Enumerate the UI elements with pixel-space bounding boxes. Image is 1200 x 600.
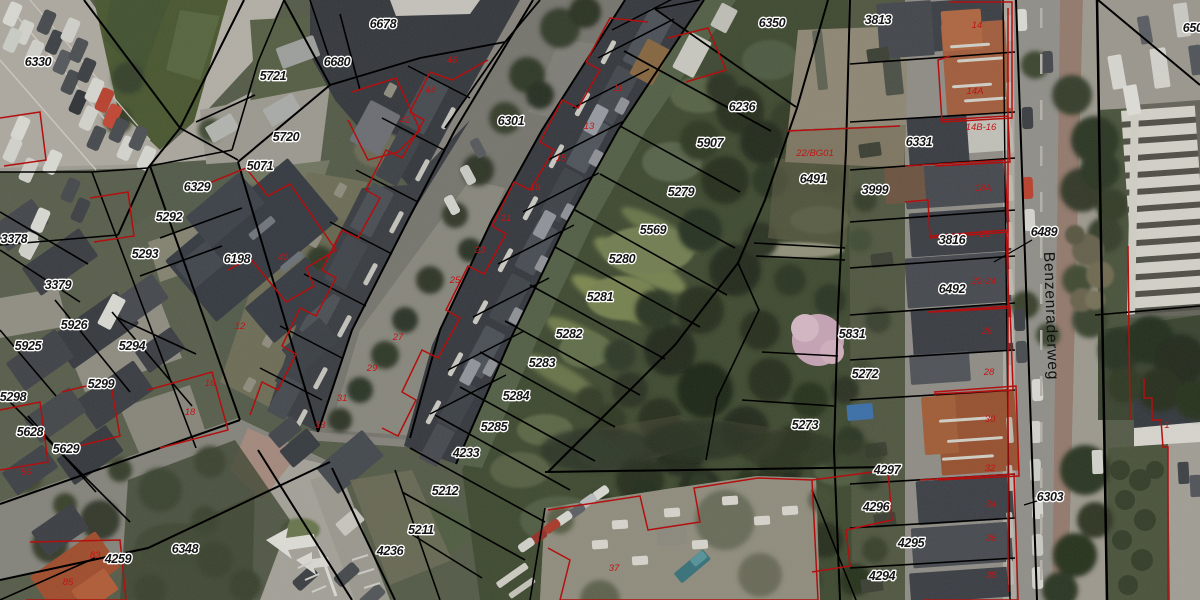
svg-text:18A: 18A bbox=[975, 183, 992, 194]
svg-text:6507: 6507 bbox=[1183, 21, 1200, 35]
svg-text:22/BG01: 22/BG01 bbox=[795, 148, 834, 159]
svg-text:5907: 5907 bbox=[697, 136, 725, 150]
svg-text:6489: 6489 bbox=[1031, 225, 1058, 239]
svg-text:5283: 5283 bbox=[529, 356, 556, 370]
svg-text:5292: 5292 bbox=[156, 210, 183, 224]
svg-text:27: 27 bbox=[392, 332, 404, 343]
svg-text:32: 32 bbox=[985, 463, 996, 474]
svg-text:25: 25 bbox=[449, 275, 461, 286]
svg-text:6492: 6492 bbox=[939, 282, 966, 296]
svg-text:5629: 5629 bbox=[53, 442, 80, 456]
svg-text:6236: 6236 bbox=[729, 100, 757, 114]
svg-text:4259: 4259 bbox=[104, 552, 132, 566]
svg-text:5285: 5285 bbox=[481, 420, 509, 434]
svg-text:5569: 5569 bbox=[640, 223, 667, 237]
svg-text:20: 20 bbox=[979, 229, 991, 240]
svg-text:40: 40 bbox=[278, 252, 289, 263]
svg-text:5299: 5299 bbox=[88, 377, 115, 391]
svg-text:4233: 4233 bbox=[452, 446, 480, 460]
svg-text:28: 28 bbox=[983, 367, 995, 378]
svg-text:14: 14 bbox=[972, 20, 983, 31]
svg-text:42: 42 bbox=[400, 115, 411, 126]
svg-text:5293: 5293 bbox=[132, 247, 159, 261]
svg-text:14B-16: 14B-16 bbox=[966, 122, 997, 133]
svg-text:37: 37 bbox=[609, 563, 620, 574]
svg-text:46: 46 bbox=[447, 55, 458, 66]
svg-text:4294: 4294 bbox=[868, 569, 896, 583]
svg-text:13: 13 bbox=[584, 121, 595, 132]
svg-text:5212: 5212 bbox=[432, 484, 459, 498]
svg-text:4295: 4295 bbox=[897, 536, 926, 550]
svg-text:3378: 3378 bbox=[1, 232, 28, 246]
svg-text:5720: 5720 bbox=[273, 130, 300, 144]
svg-text:6491: 6491 bbox=[800, 172, 827, 186]
svg-text:5282: 5282 bbox=[556, 327, 583, 341]
svg-text:26: 26 bbox=[981, 326, 993, 337]
svg-text:6303: 6303 bbox=[1037, 490, 1064, 504]
svg-text:4297: 4297 bbox=[873, 463, 902, 477]
svg-text:36: 36 bbox=[986, 533, 997, 544]
svg-text:44: 44 bbox=[425, 85, 436, 96]
svg-text:5071: 5071 bbox=[247, 159, 274, 173]
svg-text:18: 18 bbox=[185, 407, 196, 418]
svg-text:6678: 6678 bbox=[370, 17, 397, 31]
svg-text:5273: 5273 bbox=[792, 418, 819, 432]
svg-text:14A: 14A bbox=[967, 86, 984, 97]
svg-text:6330: 6330 bbox=[25, 55, 52, 69]
svg-text:6348: 6348 bbox=[172, 542, 199, 556]
svg-text:85: 85 bbox=[63, 577, 74, 588]
svg-text:5211: 5211 bbox=[408, 523, 434, 537]
svg-text:22-24: 22-24 bbox=[971, 276, 996, 287]
svg-text:6329: 6329 bbox=[184, 180, 211, 194]
svg-text:23: 23 bbox=[474, 245, 486, 256]
svg-text:3816: 3816 bbox=[939, 233, 967, 247]
svg-text:6301: 6301 bbox=[498, 114, 525, 128]
svg-text:21: 21 bbox=[500, 213, 512, 224]
svg-text:3999: 3999 bbox=[862, 183, 889, 197]
svg-text:12: 12 bbox=[235, 321, 246, 332]
svg-text:29: 29 bbox=[366, 363, 378, 374]
svg-text:1: 1 bbox=[1164, 420, 1169, 431]
svg-text:5721: 5721 bbox=[260, 69, 287, 83]
svg-text:6350: 6350 bbox=[759, 16, 786, 30]
svg-text:38: 38 bbox=[986, 570, 997, 581]
svg-text:5926: 5926 bbox=[61, 318, 89, 332]
svg-text:6198: 6198 bbox=[224, 252, 251, 266]
svg-text:5294: 5294 bbox=[119, 339, 146, 353]
svg-text:83: 83 bbox=[90, 550, 101, 561]
svg-text:16: 16 bbox=[205, 378, 216, 389]
svg-text:5281: 5281 bbox=[587, 290, 614, 304]
svg-text:5284: 5284 bbox=[503, 389, 530, 403]
svg-text:4296: 4296 bbox=[862, 500, 891, 514]
svg-text:56: 56 bbox=[21, 467, 32, 478]
svg-text:5279: 5279 bbox=[668, 185, 695, 199]
svg-text:6680: 6680 bbox=[324, 55, 351, 69]
svg-text:31: 31 bbox=[337, 393, 348, 404]
svg-text:5298: 5298 bbox=[0, 390, 27, 404]
svg-text:4236: 4236 bbox=[376, 544, 405, 558]
svg-text:3379: 3379 bbox=[45, 278, 72, 292]
svg-text:33: 33 bbox=[315, 420, 326, 431]
svg-text:5831: 5831 bbox=[839, 327, 866, 341]
svg-text:5925: 5925 bbox=[15, 339, 43, 353]
svg-text:6331: 6331 bbox=[906, 135, 933, 149]
svg-text:15: 15 bbox=[556, 153, 567, 164]
svg-text:30: 30 bbox=[985, 414, 996, 425]
svg-text:11: 11 bbox=[613, 83, 623, 94]
svg-text:5280: 5280 bbox=[609, 252, 636, 266]
svg-text:5628: 5628 bbox=[17, 425, 44, 439]
svg-text:5272: 5272 bbox=[852, 367, 879, 381]
svg-text:34: 34 bbox=[986, 499, 997, 510]
svg-text:19: 19 bbox=[530, 182, 541, 193]
svg-text:3813: 3813 bbox=[865, 13, 892, 27]
